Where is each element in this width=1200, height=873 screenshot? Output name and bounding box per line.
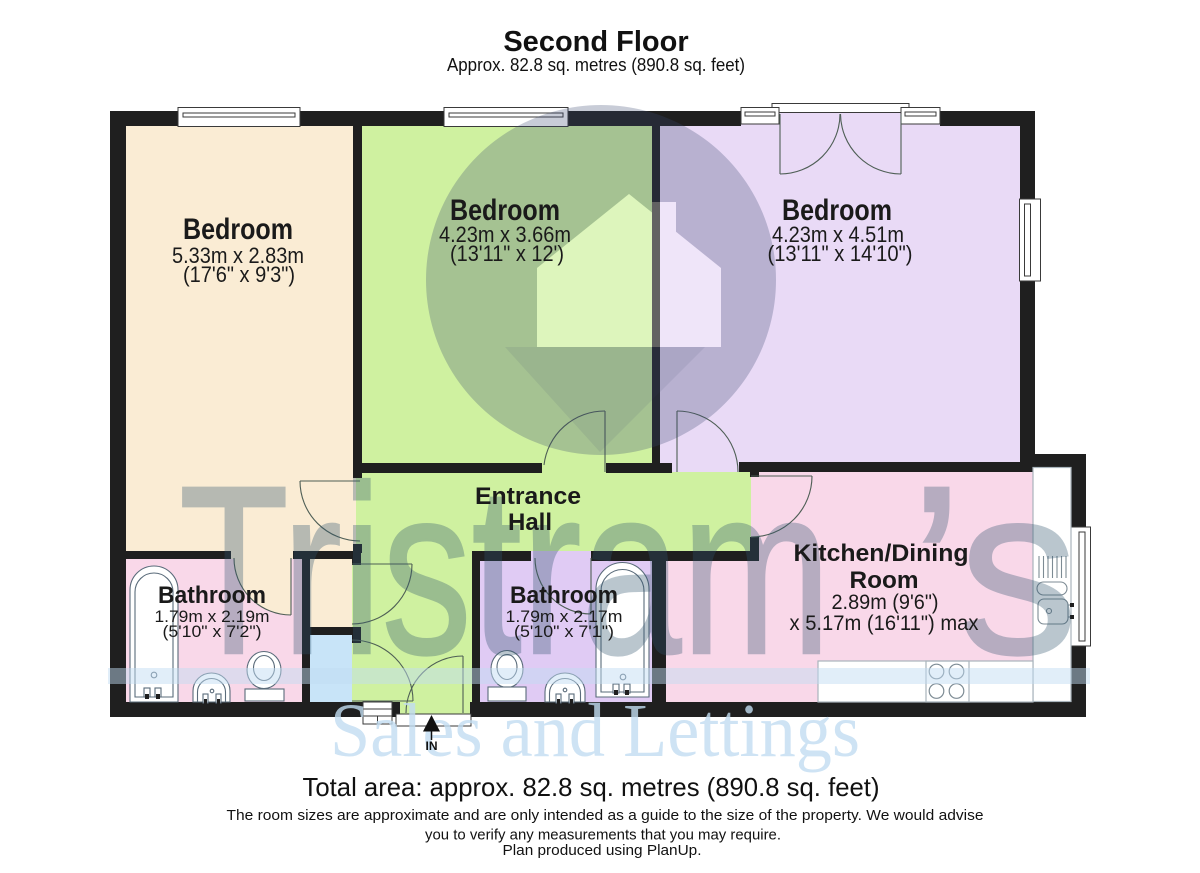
svg-text:Tristram: Tristram bbox=[179, 436, 831, 704]
svg-text:(5'10" x 7'1"): (5'10" x 7'1") bbox=[514, 622, 614, 641]
svg-text:Sales and Lettings: Sales and Lettings bbox=[330, 689, 860, 773]
svg-text:Bathroom: Bathroom bbox=[158, 582, 266, 609]
svg-text:(13'11" x 12'): (13'11" x 12') bbox=[450, 241, 564, 266]
svg-text:(5'10" x 7'2"): (5'10" x 7'2") bbox=[163, 622, 262, 641]
svg-text:Hall: Hall bbox=[508, 509, 552, 536]
svg-text:’s: ’s bbox=[910, 436, 1078, 704]
svg-text:you to verify any measurements: you to verify any measurements that you … bbox=[425, 827, 781, 844]
svg-text:Entrance: Entrance bbox=[475, 483, 581, 510]
svg-text:Second Floor: Second Floor bbox=[503, 26, 688, 58]
svg-text:Approx. 82.8 sq. metres (890.8: Approx. 82.8 sq. metres (890.8 sq. feet) bbox=[447, 55, 745, 75]
svg-text:IN: IN bbox=[426, 739, 438, 753]
svg-text:Kitchen/Dining: Kitchen/Dining bbox=[794, 540, 969, 567]
svg-text:The room sizes are approximate: The room sizes are approximate and are o… bbox=[227, 807, 984, 824]
svg-text:Room: Room bbox=[850, 567, 919, 594]
svg-text:Plan produced using PlanUp.: Plan produced using PlanUp. bbox=[503, 842, 702, 859]
svg-text:x 5.17m (16'11") max: x 5.17m (16'11") max bbox=[790, 612, 979, 635]
svg-text:(17'6" x 9'3"): (17'6" x 9'3") bbox=[183, 262, 295, 287]
svg-text:Total area: approx. 82.8 sq. m: Total area: approx. 82.8 sq. metres (890… bbox=[303, 772, 880, 802]
svg-text:Bedroom: Bedroom bbox=[183, 213, 293, 246]
svg-text:2.89m (9'6"): 2.89m (9'6") bbox=[832, 591, 939, 614]
svg-text:(13'11" x 14'10"): (13'11" x 14'10") bbox=[768, 241, 913, 266]
svg-text:Bathroom: Bathroom bbox=[510, 582, 618, 609]
